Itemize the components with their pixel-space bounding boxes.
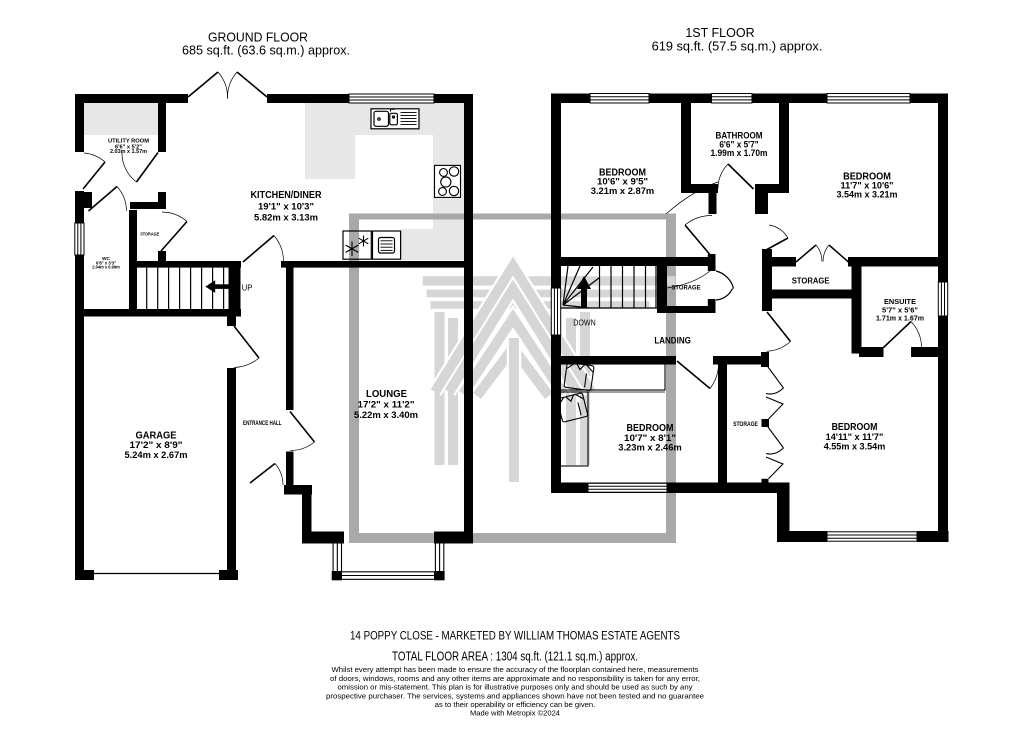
svg-text:ENTRANCE HALL: ENTRANCE HALL [243, 420, 282, 427]
svg-text:3.23m x 2.46m: 3.23m x 2.46m [618, 442, 682, 453]
svg-text:3.54m x 3.21m: 3.54m x 3.21m [837, 188, 898, 199]
svg-text:Whilst every attempt has been: Whilst every attempt has been made to en… [332, 665, 699, 674]
svg-text:ENSUITE: ENSUITE [884, 297, 916, 306]
svg-text:19'1" x 10'3": 19'1" x 10'3" [258, 200, 314, 211]
svg-text:685 sq.ft. (63.6 sq.m.) approx: 685 sq.ft. (63.6 sq.m.) approx. [182, 43, 350, 58]
svg-text:STORAGE: STORAGE [140, 232, 159, 237]
svg-text:prospective purchaser. The ser: prospective purchaser. The services, sys… [326, 691, 704, 700]
svg-text:STORAGE: STORAGE [792, 277, 830, 286]
svg-text:5.82m x 3.13m: 5.82m x 3.13m [254, 211, 318, 222]
svg-text:LANDING: LANDING [654, 335, 691, 346]
svg-text:619 sq.ft. (57.5 sq.m.) approx: 619 sq.ft. (57.5 sq.m.) approx. [652, 38, 823, 53]
svg-text:STORAGE: STORAGE [733, 421, 758, 428]
svg-text:17'2" x 11'2": 17'2" x 11'2" [358, 399, 415, 410]
svg-text:TOTAL FLOOR AREA : 1304 sq.ft.: TOTAL FLOOR AREA : 1304 sq.ft. (121.1 sq… [392, 650, 638, 664]
svg-text:2.03m x 1.57m: 2.03m x 1.57m [110, 149, 148, 155]
svg-text:5.24m x 2.67m: 5.24m x 2.67m [125, 449, 188, 460]
svg-text:STORAGE: STORAGE [672, 285, 702, 292]
svg-text:KITCHEN/DINER: KITCHEN/DINER [251, 190, 323, 201]
svg-text:5'7" x 5'6": 5'7" x 5'6" [882, 308, 918, 315]
svg-text:DOWN: DOWN [573, 318, 596, 327]
svg-text:of doors, windows, rooms and a: of doors, windows, rooms and any other i… [330, 674, 700, 683]
svg-text:Made with Metropix ©2024: Made with Metropix ©2024 [470, 708, 560, 717]
svg-text:5.22m x 3.40m: 5.22m x 3.40m [354, 409, 418, 420]
svg-text:4.55m x 3.54m: 4.55m x 3.54m [824, 440, 886, 451]
svg-text:1.99m x 1.70m: 1.99m x 1.70m [711, 148, 768, 158]
svg-text:UP: UP [242, 282, 253, 292]
svg-text:14 POPPY CLOSE - MARKETED BY W: 14 POPPY CLOSE - MARKETED BY WILLIAM THO… [350, 631, 680, 643]
svg-text:1.71m x 1.67m: 1.71m x 1.67m [876, 316, 924, 323]
svg-text:2.04m x 0.99m: 2.04m x 0.99m [92, 264, 120, 269]
svg-text:omission or mis-statement. Thi: omission or mis-statement. This plan is … [338, 683, 693, 692]
svg-text:3.21m x 2.87m: 3.21m x 2.87m [591, 185, 655, 196]
